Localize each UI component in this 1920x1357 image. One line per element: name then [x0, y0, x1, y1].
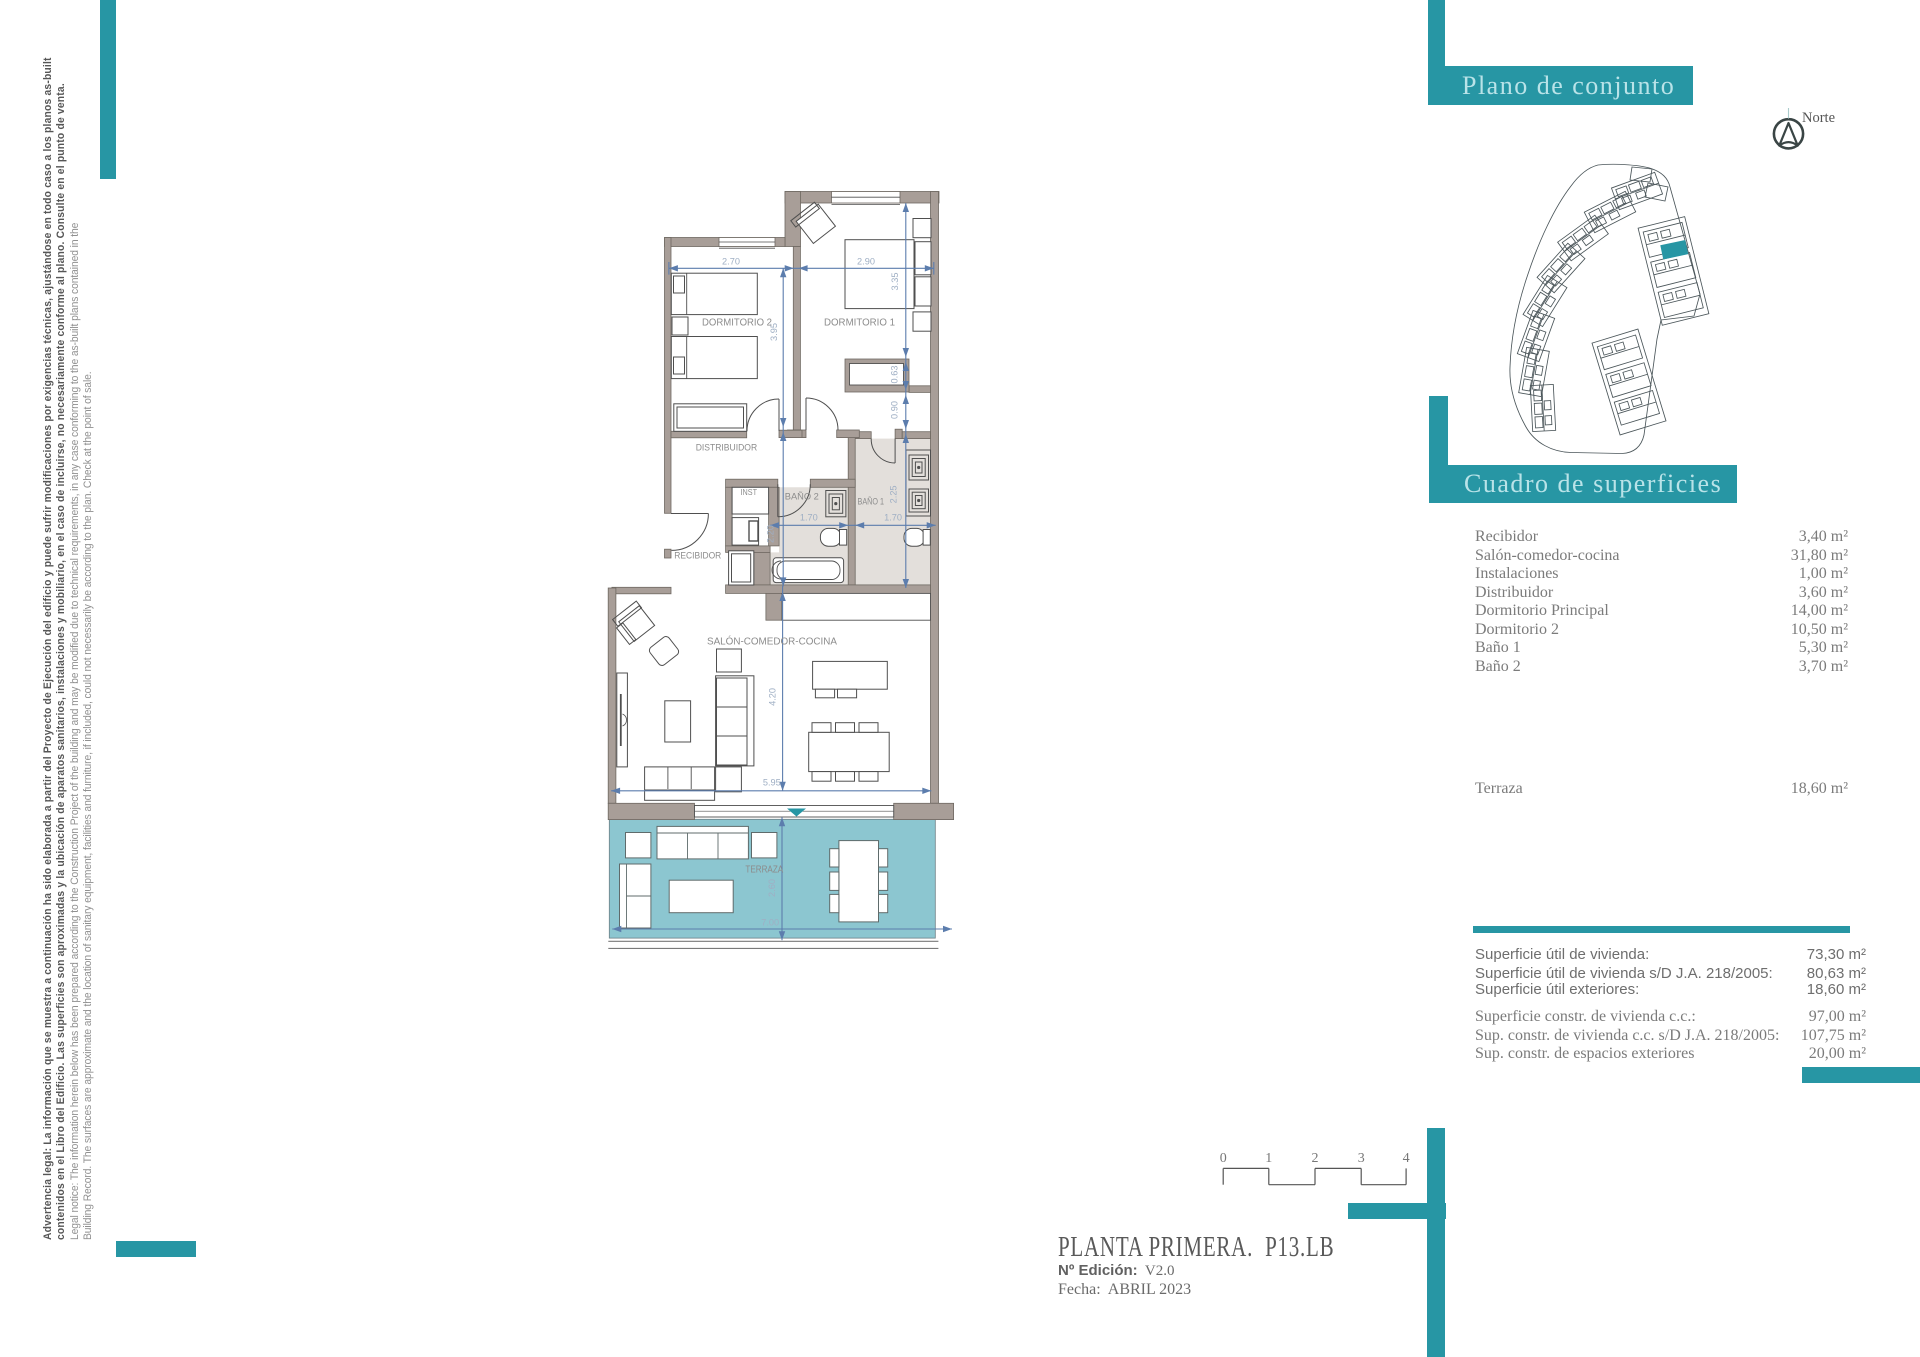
- svg-text:7.00: 7.00: [761, 917, 779, 927]
- svg-text:0.90: 0.90: [890, 401, 900, 419]
- svg-text:BAÑO 2: BAÑO 2: [785, 490, 819, 501]
- svg-text:Norte: Norte: [1802, 110, 1835, 126]
- svg-text:BAÑO 1: BAÑO 1: [858, 495, 885, 506]
- svg-text:INST: INST: [741, 488, 758, 497]
- svg-text:4: 4: [1403, 1151, 1410, 1166]
- svg-text:DISTRIBUIDOR: DISTRIBUIDOR: [696, 441, 758, 452]
- svg-text:0: 0: [1220, 1151, 1227, 1166]
- svg-text:2.90: 2.90: [857, 257, 875, 267]
- svg-text:2.70: 2.70: [722, 257, 740, 267]
- svg-text:0.63: 0.63: [890, 366, 900, 384]
- svg-text:3: 3: [1358, 1151, 1365, 1166]
- svg-text:SALÓN-COMEDOR-COCINA: SALÓN-COMEDOR-COCINA: [707, 637, 837, 648]
- svg-text:2.20: 2.20: [766, 525, 776, 543]
- svg-text:2.25: 2.25: [888, 485, 898, 503]
- svg-text:DORMITORIO 1: DORMITORIO 1: [824, 317, 895, 328]
- svg-text:2: 2: [1312, 1151, 1319, 1166]
- svg-text:2.60: 2.60: [767, 879, 777, 897]
- svg-text:DORMITORIO 2: DORMITORIO 2: [702, 317, 772, 328]
- svg-text:RECIBIDOR: RECIBIDOR: [674, 549, 721, 560]
- svg-text:4.20: 4.20: [768, 688, 778, 706]
- svg-text:1.70: 1.70: [884, 512, 902, 522]
- svg-text:1: 1: [1265, 1151, 1272, 1166]
- svg-text:5.95: 5.95: [763, 778, 781, 788]
- svg-text:TERRAZA: TERRAZA: [745, 864, 783, 875]
- svg-text:3.35: 3.35: [890, 273, 900, 291]
- svg-text:1.70: 1.70: [800, 512, 818, 522]
